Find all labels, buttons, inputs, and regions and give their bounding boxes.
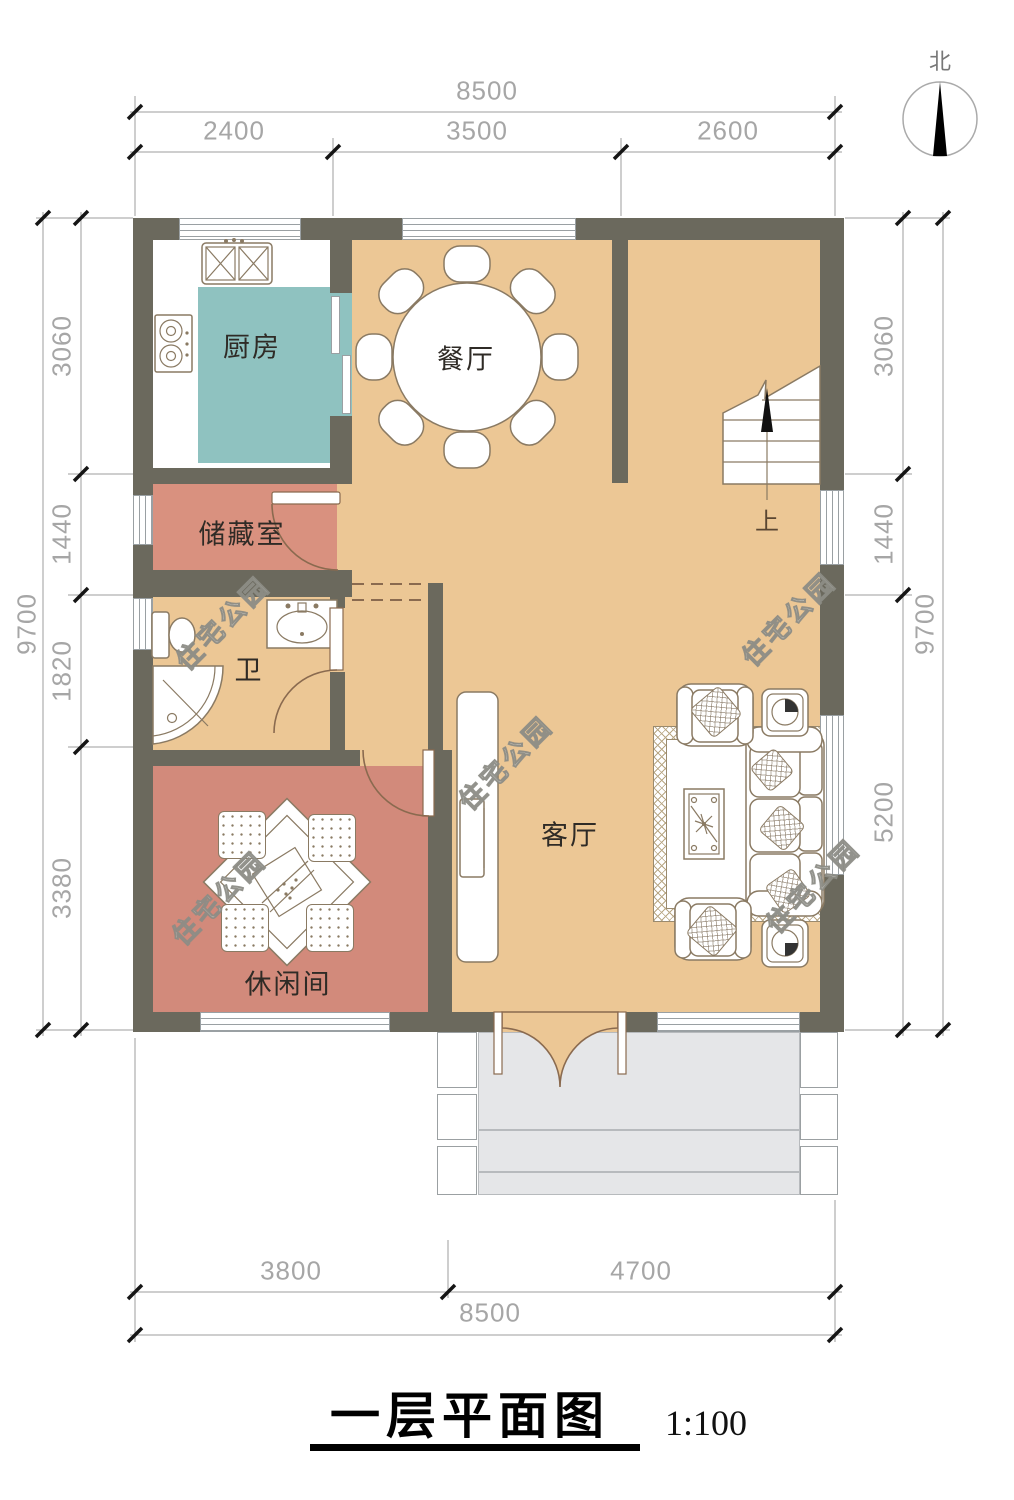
north-arrow [903,82,977,156]
dim-left-seg: 3380 [47,857,78,919]
tv-cabinet [457,692,498,962]
title-scale: 1:100 [665,1402,747,1444]
room-label-leisure: 休闲间 [245,963,332,1002]
bathroom-sink [267,600,337,648]
entrance-door [494,1012,626,1087]
hall-opening-dashed [352,584,428,600]
dim-left-seg: 3060 [47,315,78,377]
north-label: 北 [929,44,951,76]
dim-top-seg: 2400 [203,116,265,147]
title-underline [310,1444,640,1451]
leisure-chair [306,904,354,952]
dim-left-seg: 1820 [47,640,78,702]
dim-top-total: 8500 [456,76,518,107]
leisure-chair [308,814,356,862]
stairs-up-label: 上 [755,502,779,537]
dim-top-seg: 3500 [446,116,508,147]
staircase [723,366,820,500]
kitchen-sink [202,238,272,284]
dim-top-seg: 2600 [697,116,759,147]
dim-bottom-total: 8500 [459,1298,521,1329]
dim-right-seg: 3060 [869,315,900,377]
dim-right-total: 9700 [910,593,941,655]
coffee-table [684,789,724,859]
dim-left-seg: 1440 [47,503,78,565]
dim-right-seg: 5200 [869,781,900,843]
dim-bottom-seg: 4700 [610,1256,672,1287]
room-label-storage: 储藏室 [199,513,286,552]
kitchen-stove [155,315,192,372]
page-title: 一层平面图 [330,1376,610,1448]
dim-bottom-seg: 3800 [260,1256,322,1287]
room-label-living: 客厅 [541,814,599,853]
dim-left-total: 9700 [12,593,43,655]
room-label-dining: 餐厅 [437,338,495,377]
floor-plan: 厨房 餐厅 储藏室 卫 休闲间 客厅 上 北 8500 2400 3500 26… [0,0,1014,1500]
corner-shower [153,666,223,744]
room-label-kitchen: 厨房 [223,326,281,365]
leisure-door [363,750,434,816]
dim-right-seg: 1440 [869,503,900,565]
side-table-top [762,689,808,736]
room-label-bathroom: 卫 [235,649,264,688]
